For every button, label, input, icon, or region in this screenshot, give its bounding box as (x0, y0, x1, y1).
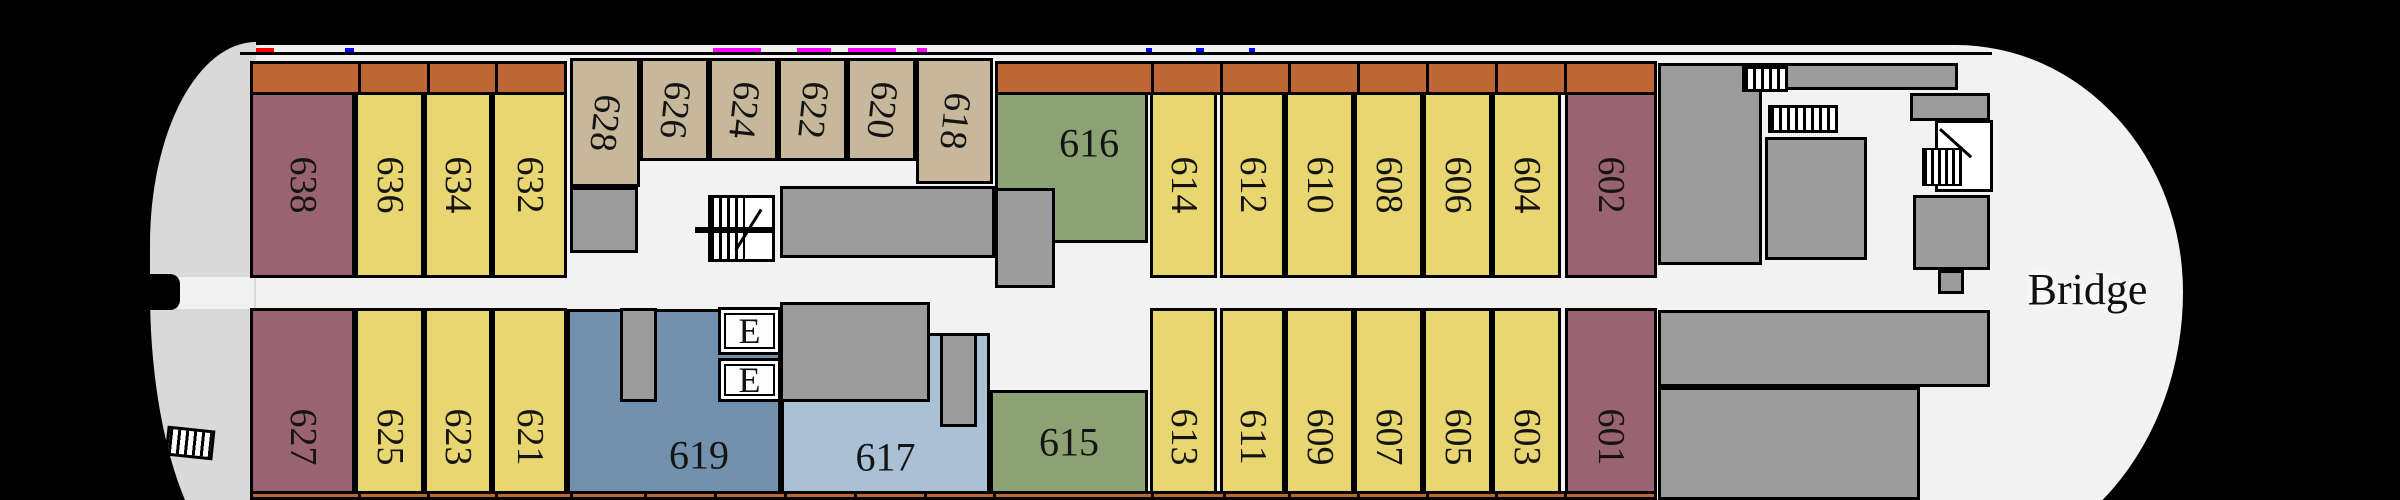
cabin-628[interactable]: 628 (570, 58, 640, 187)
cabin-634[interactable]: 634 (424, 92, 492, 278)
cabin-number: 627 (281, 409, 325, 466)
elevator-label: E (739, 310, 761, 352)
service-block (995, 188, 1055, 288)
cabin-number: 624 (719, 79, 769, 140)
cabin-number: 607 (1367, 409, 1411, 466)
balcony-divider (1495, 64, 1498, 92)
service-block (1762, 63, 1958, 90)
cabin-622[interactable]: 622 (778, 58, 847, 161)
cabin-number: 604 (1505, 157, 1549, 214)
cabin-613[interactable]: 613 (1150, 308, 1217, 494)
cabin-number: 632 (508, 157, 552, 214)
stairs-icon (1768, 105, 1838, 133)
balcony-divider (495, 494, 498, 497)
cabin-number: 622 (788, 79, 838, 140)
stair-rail (695, 227, 773, 233)
balcony-strip (250, 61, 567, 95)
balcony-divider (1564, 64, 1567, 92)
cabin-604[interactable]: 604 (1492, 92, 1561, 278)
stairs-icon (708, 195, 775, 262)
cabin-number: 613 (1162, 409, 1206, 466)
cabin-636[interactable]: 636 (355, 92, 424, 278)
balcony-divider (1357, 494, 1360, 497)
cabin-number: 611 (1231, 409, 1275, 465)
deck-plan: 6386366346326286266246226206186166146126… (0, 0, 2400, 500)
cabin-638[interactable]: 638 (250, 92, 355, 278)
balcony-divider (427, 494, 430, 497)
cabin-626[interactable]: 626 (640, 58, 709, 161)
balcony-divider (1151, 64, 1154, 92)
balcony-divider (784, 494, 787, 497)
balcony-divider (1426, 64, 1429, 92)
cabin-610[interactable]: 610 (1285, 92, 1354, 278)
balcony-divider (854, 494, 857, 497)
balcony-divider (1288, 64, 1291, 92)
cabin-number: 602 (1589, 157, 1633, 214)
cabin-number: 621 (508, 409, 552, 466)
cabin-number: 601 (1589, 409, 1633, 466)
cabin-number: 626 (650, 79, 700, 140)
service-block (1658, 63, 1762, 265)
stairs-icon (165, 426, 216, 461)
balcony-divider (1223, 494, 1226, 497)
service-block (780, 302, 930, 402)
cabin-number: 612 (1231, 157, 1275, 214)
balcony-divider (358, 494, 361, 497)
cabin-602[interactable]: 602 (1565, 92, 1657, 278)
service-block (1658, 387, 1920, 500)
corridor-patch (178, 277, 254, 309)
cabin-number: 605 (1436, 409, 1480, 466)
cabin-number: 616 (1059, 119, 1119, 166)
cabin-623[interactable]: 623 (424, 308, 492, 494)
deck-edge-line (240, 52, 1992, 55)
cabin-number: 638 (281, 157, 325, 214)
cabin-number: 614 (1162, 157, 1206, 214)
balcony-strip (250, 491, 1657, 500)
cabin-number: 625 (368, 409, 412, 466)
balcony-divider (358, 64, 361, 92)
cabin-number: 620 (857, 79, 907, 140)
service-block (1938, 270, 1964, 294)
cabin-number: 628 (580, 92, 630, 153)
cabin-611[interactable]: 611 (1220, 308, 1285, 494)
cabin-607[interactable]: 607 (1354, 308, 1423, 494)
balcony-divider (924, 494, 927, 497)
cabin-601[interactable]: 601 (1565, 308, 1657, 494)
balcony-divider (1220, 64, 1223, 92)
balcony-divider (993, 494, 996, 497)
service-block (570, 187, 638, 253)
balcony-divider (1495, 494, 1498, 497)
balcony-divider (495, 64, 498, 92)
elevator-label: E (739, 359, 761, 401)
stairs-icon (1935, 120, 1993, 192)
cabin-609[interactable]: 609 (1285, 308, 1354, 494)
cabin-number: 619 (669, 432, 729, 479)
service-block (1913, 195, 1990, 270)
cabin-number: 610 (1298, 157, 1342, 214)
cabin-625[interactable]: 625 (355, 308, 424, 494)
cabin-624[interactable]: 624 (709, 58, 778, 161)
balcony-divider (1426, 494, 1429, 497)
cabin-612[interactable]: 612 (1220, 92, 1285, 278)
balcony-divider (644, 494, 647, 497)
service-block (1910, 93, 1990, 121)
cabin-number: 609 (1298, 409, 1342, 466)
bridge-label: Bridge (1995, 265, 2180, 313)
cabin-614[interactable]: 614 (1150, 92, 1217, 278)
cabin-618[interactable]: 618 (916, 58, 993, 184)
stern-notch (150, 274, 180, 310)
cabin-number: 608 (1367, 157, 1411, 214)
cabin-number: 606 (1436, 157, 1480, 214)
cabin-number: 623 (436, 409, 480, 466)
balcony-divider (570, 494, 573, 497)
elevator-icon: E (718, 307, 781, 355)
cabin-number: 615 (1039, 419, 1099, 466)
service-block (1658, 310, 1990, 387)
cabin-615[interactable]: 615 (990, 390, 1148, 494)
cabin-627[interactable]: 627 (250, 308, 355, 494)
cabin-605[interactable]: 605 (1423, 308, 1492, 494)
balcony-divider (714, 494, 717, 497)
cabin-606[interactable]: 606 (1423, 92, 1492, 278)
cabin-number: 617 (856, 433, 916, 480)
balcony-divider (1357, 64, 1360, 92)
balcony-divider (427, 64, 430, 92)
balcony-divider (1288, 494, 1291, 497)
cabin-603[interactable]: 603 (1492, 308, 1561, 494)
service-block (1765, 137, 1867, 260)
cabin-620[interactable]: 620 (847, 58, 916, 161)
elevator-icon: E (718, 358, 781, 402)
cabin-number: 634 (436, 157, 480, 214)
service-block (620, 308, 657, 402)
balcony-divider (1564, 494, 1567, 497)
cabin-number: 618 (930, 90, 980, 151)
balcony-divider (1151, 494, 1154, 497)
cabin-621[interactable]: 621 (492, 308, 567, 494)
service-block (940, 333, 977, 427)
stairs-icon (1742, 66, 1788, 92)
balcony-strip (995, 61, 1657, 95)
service-block (780, 186, 995, 258)
cabin-number: 636 (368, 157, 412, 214)
cabin-632[interactable]: 632 (492, 92, 567, 278)
stair-treads (1922, 148, 1962, 186)
cabin-number: 603 (1505, 409, 1549, 466)
cabin-608[interactable]: 608 (1354, 92, 1423, 278)
